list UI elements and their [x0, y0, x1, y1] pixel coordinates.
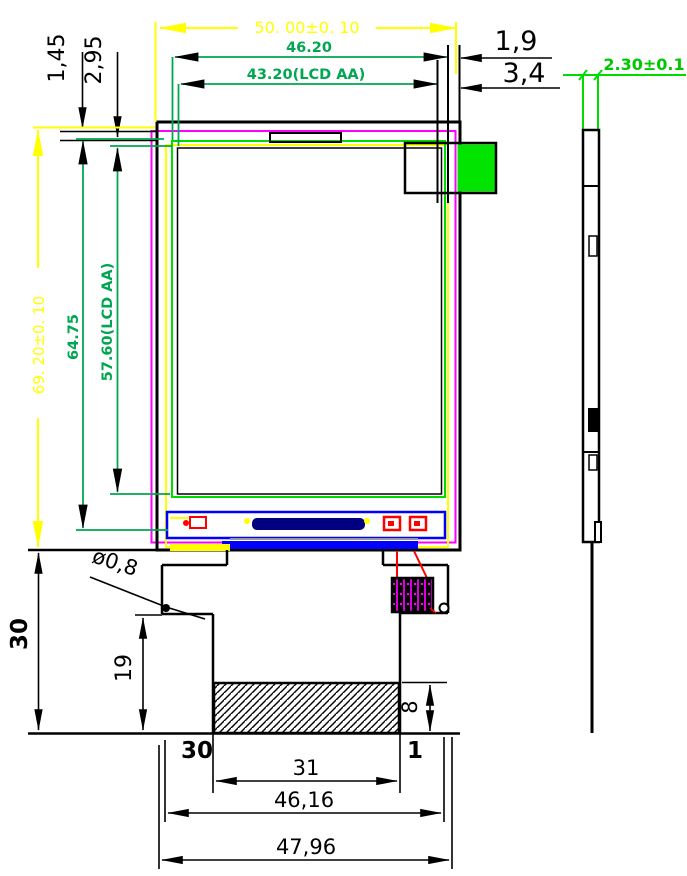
side-detail-1	[589, 236, 597, 256]
aa-height-label: 57.60(LCD AA)	[100, 263, 116, 382]
overall-height-label: 69. 20±0. 10	[30, 296, 48, 394]
glass-width-label: 46.20	[286, 40, 332, 56]
glass-height-label: 64.75	[66, 314, 82, 360]
ic-chip	[392, 578, 433, 612]
dimensions-left-offsets: 1,45 2,95	[45, 34, 157, 141]
offset-large-label: 2,95	[82, 36, 107, 85]
front-view-bottom-assembly	[167, 512, 445, 551]
pin-first-label: 30	[181, 738, 213, 764]
red-component-left	[190, 517, 206, 528]
yellow-bar	[170, 544, 230, 551]
red-pad-dot	[183, 520, 189, 526]
front-view-frames	[152, 122, 497, 550]
connector-contact-hatch	[214, 683, 399, 733]
fpc-stiffener-bar	[222, 541, 418, 549]
fpc-ic	[392, 551, 436, 613]
side-view: 2.30±0.1	[563, 55, 686, 733]
active-area-outline	[178, 148, 442, 494]
yellow-dot-right	[364, 518, 370, 524]
lens-bar	[252, 518, 365, 530]
aa-width-label: 43.20(LCD AA)	[247, 67, 366, 83]
overall-width-label: 50. 00±0. 10	[254, 18, 359, 37]
drawing-canvas: 2.30±0.1 50. 00±0. 10 46.20 43.20(LCD AA…	[0, 0, 687, 876]
green-component-fill	[458, 145, 496, 192]
alignment-hole-right	[440, 604, 449, 613]
side-body	[583, 130, 599, 542]
glass-yellow-outline	[166, 145, 448, 547]
fpc-width-label: 46,16	[274, 788, 334, 812]
red-pad	[414, 521, 420, 526]
offset-small-label: 1,9	[495, 26, 538, 57]
lcd-green-outline	[172, 141, 445, 497]
dimensions-top: 50. 00±0. 10 46.20 43.20(LCD AA)	[156, 18, 457, 146]
offset-small-label: 1,45	[45, 34, 70, 83]
red-pad	[388, 521, 394, 526]
notch-height-label: 19	[112, 654, 137, 682]
contact-width-label: 31	[293, 756, 320, 780]
side-detail-2	[589, 455, 597, 470]
module-outline	[157, 122, 460, 550]
side-step	[595, 522, 601, 542]
pin-last-label: 1	[407, 738, 423, 764]
side-filled-block	[588, 408, 598, 432]
hole-leader-line	[90, 577, 166, 607]
thickness-label: 2.30±0.1	[603, 55, 684, 74]
offset-large-label: 3,4	[503, 58, 546, 89]
drop-height-label: 30	[7, 618, 33, 650]
contact-height-label: 8	[398, 700, 422, 713]
yellow-dot-left	[244, 518, 250, 524]
lcd-outline-drawing: 2.30±0.1 50. 00±0. 10 46.20 43.20(LCD AA…	[0, 0, 687, 876]
fpc-overall-width-label: 47,96	[276, 835, 336, 859]
